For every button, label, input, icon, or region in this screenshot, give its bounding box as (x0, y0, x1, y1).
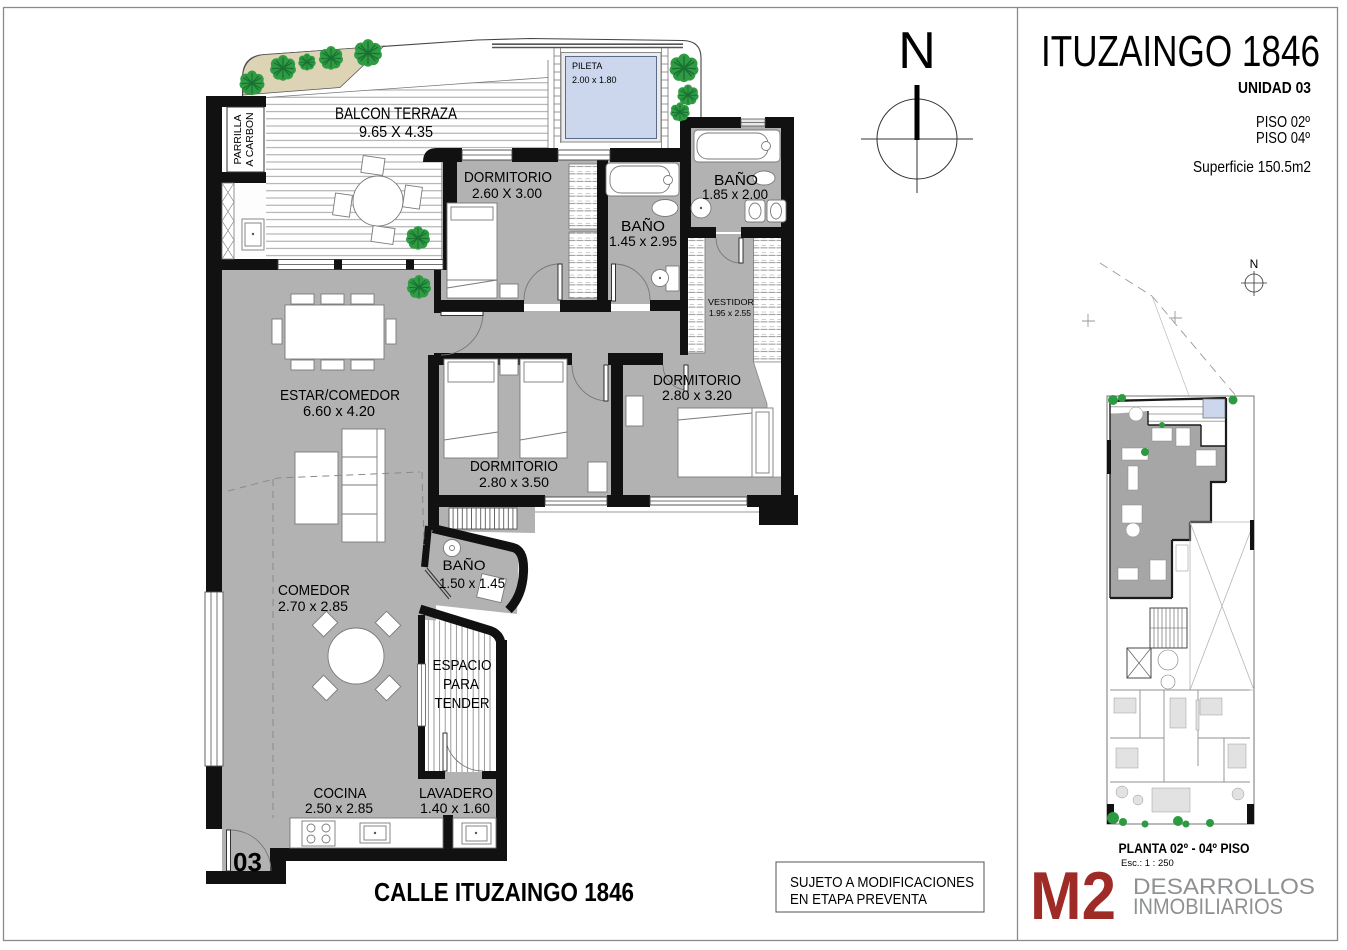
svg-text:Esc.: 1 : 250: Esc.: 1 : 250 (1121, 858, 1174, 869)
svg-text:PISO 02º: PISO 02º (1256, 114, 1310, 131)
svg-text:ITUZAINGO 1846: ITUZAINGO 1846 (1041, 27, 1320, 76)
svg-text:PISO 04º: PISO 04º (1256, 130, 1310, 147)
svg-text:ESPACIO: ESPACIO (433, 658, 492, 674)
svg-text:N: N (1250, 257, 1259, 271)
svg-text:BAÑO: BAÑO (443, 557, 486, 573)
svg-text:SUJETO A MODIFICACIONES: SUJETO A MODIFICACIONES (790, 875, 974, 891)
svg-text:ESTAR/COMEDOR: ESTAR/COMEDOR (280, 387, 400, 404)
svg-text:1.50 x 1.45: 1.50 x 1.45 (439, 575, 505, 591)
svg-text:BALCON TERRAZA: BALCON TERRAZA (335, 105, 457, 123)
svg-text:2.80 x 3.20: 2.80 x 3.20 (662, 387, 732, 403)
svg-text:UNIDAD 03: UNIDAD 03 (1238, 80, 1311, 97)
svg-text:PARA: PARA (443, 677, 479, 693)
svg-text:2.80 x 3.50: 2.80 x 3.50 (479, 474, 549, 490)
svg-text:Superficie 150.5m2: Superficie 150.5m2 (1193, 159, 1311, 176)
svg-text:2.60 X 3.00: 2.60 X 3.00 (472, 185, 542, 201)
svg-text:2.50 x 2.85: 2.50 x 2.85 (305, 800, 373, 816)
svg-text:M2: M2 (1030, 858, 1116, 934)
svg-text:2.00 x 1.80: 2.00 x 1.80 (572, 75, 617, 85)
svg-text:1.95 x 2.55: 1.95 x 2.55 (709, 308, 751, 318)
svg-text:A CARBON: A CARBON (244, 112, 256, 166)
svg-text:1.85 x 2.00: 1.85 x 2.00 (702, 186, 768, 202)
svg-text:1.45 x 2.95: 1.45 x 2.95 (609, 233, 677, 249)
svg-text:6.60 x 4.20: 6.60 x 4.20 (303, 404, 375, 420)
svg-text:DORMITORIO: DORMITORIO (470, 459, 558, 475)
svg-text:PILETA: PILETA (572, 61, 602, 71)
svg-text:9.65 X 4.35: 9.65 X 4.35 (359, 124, 433, 141)
svg-text:INMOBILIARIOS: INMOBILIARIOS (1133, 894, 1283, 919)
svg-text:2.70 x 2.85: 2.70 x 2.85 (278, 598, 348, 614)
svg-text:VESTIDOR: VESTIDOR (708, 297, 754, 307)
svg-text:N: N (898, 22, 936, 80)
svg-text:PLANTA 02º - 04º PISO: PLANTA 02º - 04º PISO (1119, 841, 1250, 856)
svg-text:TENDER: TENDER (435, 696, 490, 712)
svg-text:03: 03 (233, 847, 262, 877)
svg-text:CALLE ITUZAINGO 1846: CALLE ITUZAINGO 1846 (374, 877, 634, 907)
svg-text:EN ETAPA PREVENTA: EN ETAPA PREVENTA (790, 892, 927, 908)
svg-text:PARRILLA: PARRILLA (232, 115, 244, 165)
svg-text:DORMITORIO: DORMITORIO (464, 170, 552, 186)
svg-text:1.40 x 1.60: 1.40 x 1.60 (420, 800, 490, 816)
svg-text:COMEDOR: COMEDOR (278, 583, 350, 599)
